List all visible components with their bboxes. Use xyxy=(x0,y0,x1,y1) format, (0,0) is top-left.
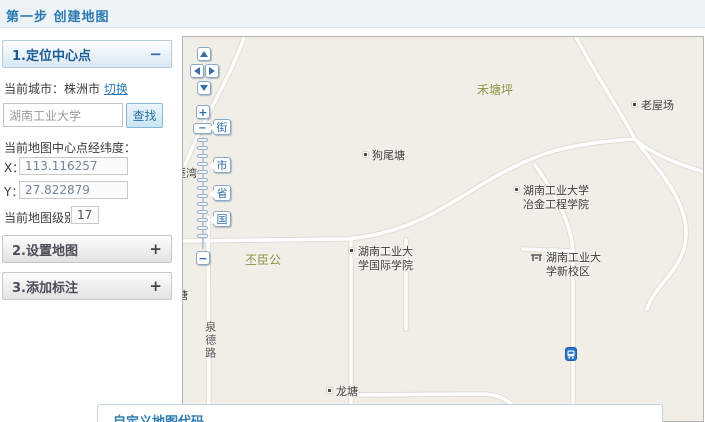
map-label: 湖南工业大学 冶金工程学院 xyxy=(514,184,589,212)
map-label: 老屋场 xyxy=(632,99,674,113)
bus-stop-map-item xyxy=(565,347,577,361)
step-title: 第一步 创建地图 xyxy=(6,6,110,25)
pan-left-button[interactable] xyxy=(190,64,204,78)
panel-set-map-header[interactable]: 2.设置地图 + xyxy=(2,235,172,263)
x-coordinate-field[interactable] xyxy=(19,157,128,175)
step-header-bar: 第一步 创建地图 xyxy=(0,0,705,28)
map-label-text: 狗尾塘 xyxy=(372,149,405,163)
panel-set-map-title: 2.设置地图 xyxy=(12,240,78,259)
zoom-out-button[interactable]: − xyxy=(196,251,210,265)
switch-city-link[interactable]: 切换 xyxy=(104,82,128,96)
poi-square-marker xyxy=(514,187,519,192)
collapse-icon[interactable]: − xyxy=(149,47,162,62)
map-label: 丕臣公 xyxy=(245,253,281,268)
map-label: 厔湾 xyxy=(182,167,197,181)
zoom-tick xyxy=(197,162,208,166)
map-label-text: 龙塘 xyxy=(336,385,358,399)
map-label-text: 湖南工业大学 冶金工程学院 xyxy=(523,184,589,212)
poi-square-marker xyxy=(632,102,637,107)
arrow-up-icon xyxy=(200,51,208,57)
arrow-left-icon xyxy=(194,67,200,75)
pan-right-button[interactable] xyxy=(205,64,219,78)
map-label: 龙塘 xyxy=(327,385,358,399)
panel-add-marker-title: 3.添加标注 xyxy=(12,277,78,296)
arrow-down-icon xyxy=(200,85,208,91)
pan-up-button[interactable] xyxy=(197,47,211,61)
map-label: 泉德路 xyxy=(203,321,217,360)
search-button[interactable]: 查找 xyxy=(126,103,163,128)
zoom-level-bubble[interactable]: 国 xyxy=(213,211,231,227)
panel-locate-center-header[interactable]: 1.定位中心点 − xyxy=(2,40,172,68)
zoom-tick xyxy=(197,194,208,198)
map-label-text: 厔湾 xyxy=(182,167,197,181)
arrow-right-icon xyxy=(209,67,215,75)
bus-stop-icon xyxy=(565,347,577,361)
zoom-level-bubble[interactable]: 省 xyxy=(213,185,231,201)
center-point-label: 当前地图中心点经纬度： xyxy=(4,139,136,156)
map-builder-page: 第一步 创建地图 1.定位中心点 − 当前城市：株洲市 切换 查找 当前地图中心… xyxy=(0,0,705,422)
poi-square-marker xyxy=(349,248,354,253)
custom-map-code-title: 自定义地图代码 xyxy=(113,411,204,422)
zoom-tick xyxy=(197,178,208,182)
map-label-text: 老屋场 xyxy=(641,99,674,113)
zoom-tick xyxy=(197,138,208,142)
map-label-text: 泉德路 xyxy=(203,321,217,360)
school-gate-icon xyxy=(531,251,546,266)
zoom-tick xyxy=(197,154,208,158)
poi-square-marker xyxy=(363,152,368,157)
zoom-level-bubble[interactable]: 市 xyxy=(213,157,231,173)
panel-locate-center-title: 1.定位中心点 xyxy=(12,45,91,64)
map-label: 禾塘坪 xyxy=(477,83,513,98)
zoom-tick xyxy=(197,170,208,174)
map-label-text: 湖南工业大 学国际学院 xyxy=(358,245,413,273)
zoom-tick xyxy=(197,202,208,206)
zoom-tick xyxy=(197,186,208,190)
expand-icon[interactable]: + xyxy=(149,242,162,257)
custom-map-code-panel: 自定义地图代码 xyxy=(97,404,663,422)
map-label: 狗尾塘 xyxy=(363,149,405,163)
pan-down-button[interactable] xyxy=(197,81,211,95)
panel-add-marker-header[interactable]: 3.添加标注 + xyxy=(2,272,172,300)
search-input[interactable] xyxy=(3,103,123,127)
zoom-tick xyxy=(197,218,208,222)
school-gate-map-item: 湖南工业大 学新校区 xyxy=(531,251,601,279)
current-city-value: 株洲市 xyxy=(64,82,100,96)
map-label: 塘 xyxy=(182,289,188,303)
map-canvas[interactable]: 禾塘坪老屋场狗尾塘湖南工业大学 冶金工程学院湖南工业大 学国际学院湖南工业大 学… xyxy=(182,36,704,422)
map-label-text: 塘 xyxy=(182,289,188,303)
map-level-field[interactable] xyxy=(71,206,99,224)
zoom-tick xyxy=(197,226,208,230)
zoom-tick xyxy=(197,210,208,214)
zoom-tick xyxy=(197,146,208,150)
expand-icon[interactable]: + xyxy=(149,279,162,294)
zoom-level-bubble[interactable]: 街 xyxy=(213,119,231,135)
zoom-tick xyxy=(197,234,208,238)
map-label: 湖南工业大 学国际学院 xyxy=(349,245,413,273)
map-label-text: 湖南工业大 学新校区 xyxy=(546,251,601,279)
map-roads xyxy=(183,37,704,422)
current-city-label: 当前城市： xyxy=(4,82,64,96)
y-coordinate-field[interactable] xyxy=(19,181,128,199)
map-label-text: 禾塘坪 xyxy=(477,83,513,98)
zoom-in-button[interactable]: + xyxy=(196,105,210,119)
current-city-row: 当前城市：株洲市 切换 xyxy=(4,80,128,97)
poi-square-marker xyxy=(327,388,332,393)
map-label-text: 丕臣公 xyxy=(245,253,281,268)
